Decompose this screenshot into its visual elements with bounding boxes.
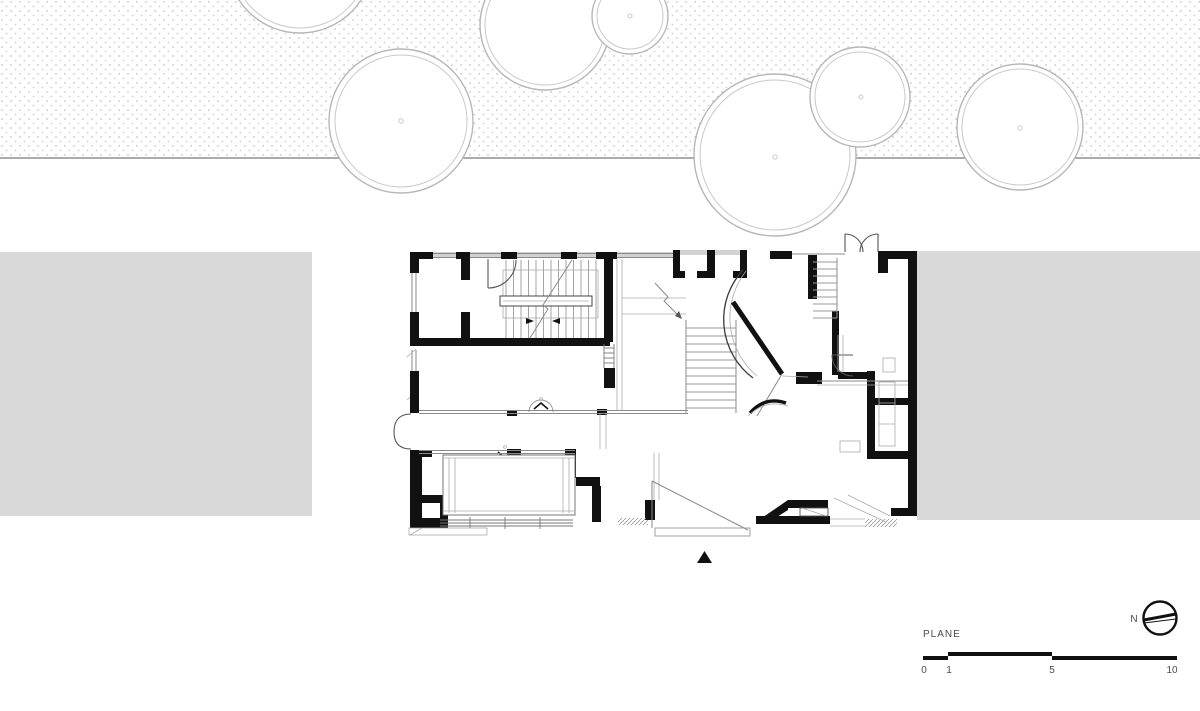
stair-direction-arrow [526, 318, 534, 324]
sliding-track [440, 517, 573, 529]
stair-direction-arrow [552, 318, 560, 324]
arrow-head [675, 311, 682, 319]
fixture [840, 441, 860, 452]
adjacent-building-left [0, 252, 312, 516]
north-arrow-icon [1144, 602, 1177, 635]
north-label: N [1130, 614, 1137, 625]
scale-tick-0: 0 [921, 665, 927, 676]
entrance-marker-triangle [697, 551, 712, 563]
furniture [443, 358, 895, 515]
tree-icon [810, 47, 910, 147]
scale-tick-1: 1 [946, 665, 952, 676]
drawing-label: PLANE [923, 629, 961, 640]
scale-tick-5: 5 [1049, 665, 1055, 676]
canopy-edge [652, 481, 748, 530]
main-staircase [488, 259, 598, 338]
plan-drawing: PLANE 0 1 5 10 N [0, 0, 1200, 711]
scale-tick-10: 10 [1166, 665, 1178, 676]
corridor-door-bump [529, 398, 553, 412]
secondary-staircase [655, 283, 736, 413]
tree-icon [329, 49, 473, 193]
scale-bar [923, 652, 1177, 660]
threshold-mat [618, 518, 648, 525]
double-door-west [394, 414, 411, 449]
floor-plan [394, 234, 917, 536]
stair-break-line [655, 283, 680, 317]
tree-icon [957, 64, 1083, 190]
central-void-lines [617, 259, 686, 410]
curved-door-leaf [750, 401, 786, 413]
diagonal-wall [733, 302, 782, 374]
plan-sheet: PLANE 0 1 5 10 N [0, 0, 1200, 711]
ladder-symbol [604, 344, 614, 368]
adjacent-building-right [917, 251, 1200, 520]
title-block: PLANE 0 1 5 10 N [921, 602, 1178, 677]
entry-step [655, 528, 750, 536]
door-swing [488, 259, 516, 288]
shelf-unit [879, 382, 895, 446]
double-entry-door-north [845, 234, 878, 252]
stair-treads [686, 328, 736, 408]
fixture [883, 358, 895, 372]
large-table [443, 455, 575, 515]
threshold-mat [865, 519, 897, 527]
